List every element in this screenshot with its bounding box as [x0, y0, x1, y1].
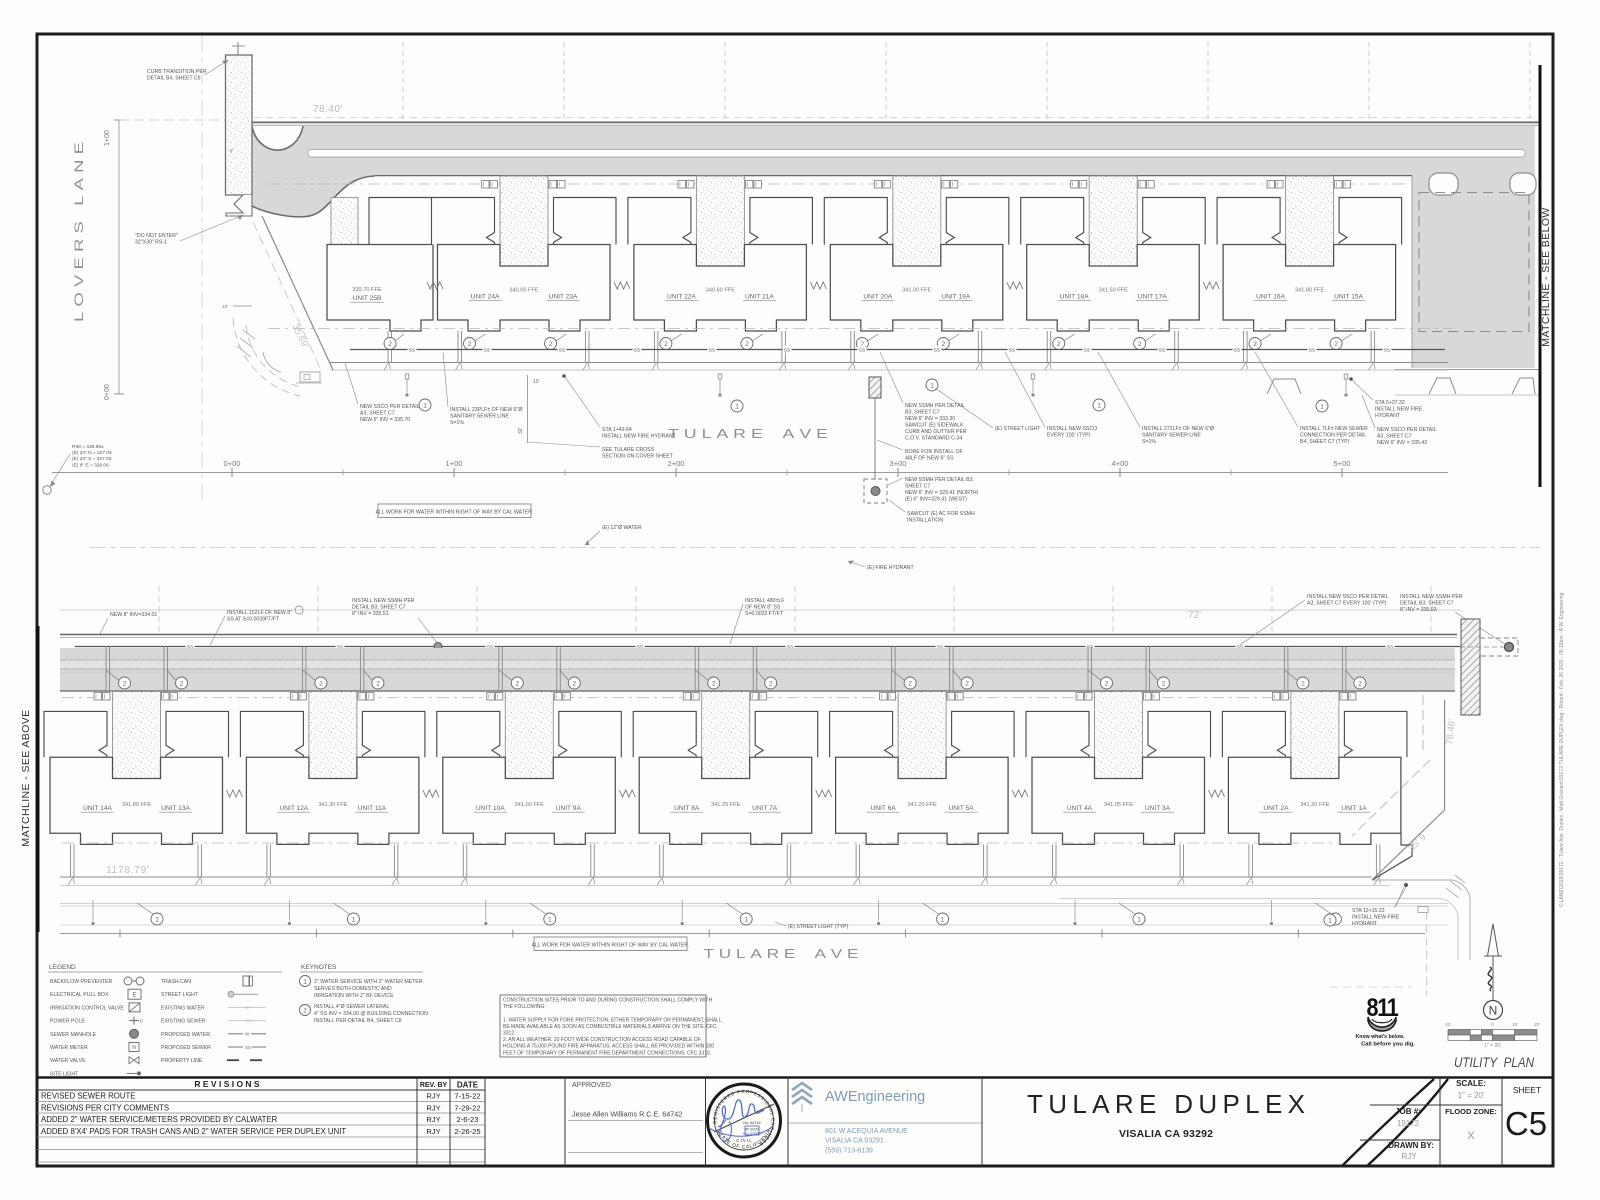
svg-text:7-29-22: 7-29-22: [454, 1103, 480, 1112]
svg-text:STA 5+37.32: STA 5+37.32: [1375, 400, 1405, 406]
svg-text:INSTALL NEW SSMH PER: INSTALL NEW SSMH PER: [352, 598, 415, 604]
svg-text:RJY: RJY: [1401, 1152, 1417, 1161]
svg-text:(559) 713-6139: (559) 713-6139: [825, 1147, 873, 1154]
svg-text:1: 1: [1137, 916, 1141, 923]
svg-text:1: 1: [744, 916, 748, 923]
svg-text:NEW 6" INV = 333.30: NEW 6" INV = 333.30: [905, 416, 955, 422]
svg-text:2: 2: [712, 680, 716, 687]
svg-text:R E V I S I O N S: R E V I S I O N S: [194, 1079, 260, 1089]
svg-text:SHEET: SHEET: [1513, 1085, 1541, 1095]
svg-text:1: 1: [548, 916, 552, 923]
svg-text:NEW 6" INV = 335.70: NEW 6" INV = 335.70: [360, 417, 410, 423]
svg-text:KEYNOTES: KEYNOTES: [301, 964, 337, 971]
svg-text:UNIT 10A: UNIT 10A: [476, 805, 505, 812]
svg-text:DRAWN BY:: DRAWN BY:: [1388, 1141, 1434, 1150]
svg-text:INSTALL NEW SSCO: INSTALL NEW SSCO: [1047, 426, 1097, 432]
svg-text:2: 2: [1358, 680, 1362, 687]
svg-text:POWER POLE: POWER POLE: [50, 1019, 85, 1025]
svg-text:2: 2: [1334, 341, 1338, 348]
svg-text:0+00: 0+00: [224, 459, 241, 468]
svg-text:48LF OF NEW 6" SS: 48LF OF NEW 6" SS: [905, 456, 954, 462]
svg-text:1: 1: [352, 916, 356, 923]
svg-text:(E) STREET LIGHT (TYP): (E) STREET LIGHT (TYP): [788, 924, 849, 930]
svg-text:PROPOSED SEWER: PROPOSED SEWER: [161, 1045, 211, 1051]
svg-text:8" INV = 335.51: 8" INV = 335.51: [352, 611, 389, 617]
svg-text:C.O.V. STANDARD C-34: C.O.V. STANDARD C-34: [905, 436, 962, 442]
svg-text:341.25 FFE: 341.25 FFE: [711, 802, 740, 808]
svg-text:1: 1: [303, 978, 307, 985]
svg-text:32"X30" RS-1: 32"X30" RS-1: [135, 240, 167, 246]
svg-text:UNIT 18A: UNIT 18A: [1060, 294, 1089, 301]
svg-text:CONSTRUCTION SITES PRIOR TO AN: CONSTRUCTION SITES PRIOR TO AND DURING C…: [503, 998, 713, 1004]
svg-text:2: 2: [388, 341, 392, 348]
svg-text:2: 2: [664, 341, 668, 348]
svg-text:X: X: [1467, 1130, 1475, 1142]
svg-text:2: 2: [1138, 341, 1142, 348]
svg-text:SS: SS: [934, 348, 940, 354]
svg-text:© LANE\2019\19172 - Tulare A: © LANE\2019\19172 - Tulare Ave. Duplex -…: [1558, 592, 1565, 907]
svg-text:REVISIONS PER CITY COMMENTS: REVISIONS PER CITY COMMENTS: [41, 1103, 169, 1112]
svg-text:2: 2: [376, 680, 380, 687]
svg-text:341.00 FFE: 341.00 FFE: [902, 288, 931, 294]
svg-text:E: E: [132, 993, 136, 999]
svg-text:2-26-25: 2-26-25: [454, 1127, 480, 1136]
svg-text:DETAIL B3, SHEET C7: DETAIL B3, SHEET C7: [1400, 601, 1454, 607]
svg-text:SS: SS: [1159, 348, 1165, 354]
svg-text:UNIT 23A: UNIT 23A: [549, 294, 578, 301]
svg-text:2: 2: [468, 341, 472, 348]
svg-text:2-6-23: 2-6-23: [457, 1115, 479, 1124]
svg-text:1: 1: [735, 403, 739, 410]
svg-text:2: 2: [965, 680, 969, 687]
svg-text:2: 2: [1105, 680, 1109, 687]
svg-text:2" WATER SERVICE WITH 2" WATER: 2" WATER SERVICE WITH 2" WATER METER.: [314, 979, 424, 985]
svg-text:VISALIA CA 93292: VISALIA CA 93292: [1119, 1128, 1213, 1140]
svg-text:SS AT S=0.0039FT/FT: SS AT S=0.0039FT/FT: [227, 617, 280, 623]
svg-text:RJY: RJY: [426, 1103, 440, 1112]
svg-text:INSTALL PER DETAIL B4, SHEET C: INSTALL PER DETAIL B4, SHEET C8: [314, 1018, 402, 1024]
svg-text:UNIT 7A: UNIT 7A: [752, 805, 778, 812]
svg-text:(E) 24" N = 327.03: (E) 24" N = 327.03: [72, 450, 112, 456]
svg-text:EXISTING SEWER: EXISTING SEWER: [161, 1019, 206, 1025]
svg-text:Exp. 6/30/23: Exp. 6/30/23: [743, 1132, 761, 1136]
svg-text:SAWCUT (E) AC FOR SSMH: SAWCUT (E) AC FOR SSMH: [907, 511, 975, 517]
svg-text:B3, SHEET C7: B3, SHEET C7: [905, 410, 940, 416]
svg-text:SS: SS: [1384, 348, 1390, 354]
svg-text:APPROVED: APPROVED: [572, 1082, 611, 1089]
svg-text:N: N: [1489, 1004, 1498, 1018]
svg-text:DETAIL B3, SHEET C7: DETAIL B3, SHEET C7: [352, 605, 406, 611]
svg-text:No. 64742: No. 64742: [743, 1121, 761, 1125]
svg-text:NEW 8" INV=334.01: NEW 8" INV=334.01: [110, 612, 157, 618]
svg-text:S=1%: S=1%: [450, 420, 464, 426]
svg-text:1" = 20': 1" = 20': [1484, 1043, 1501, 1049]
svg-text:3+00: 3+00: [890, 459, 907, 468]
svg-text:1+00: 1+00: [104, 130, 111, 146]
svg-text:INSTALL NEW FIRE: INSTALL NEW FIRE: [1375, 407, 1423, 413]
svg-text:1: 1: [930, 382, 934, 389]
svg-text:8" INV = 335.93: 8" INV = 335.93: [1400, 607, 1437, 613]
svg-text:INSTALL 7LF± NEW SEWER: INSTALL 7LF± NEW SEWER: [1300, 426, 1368, 432]
svg-text:1: 1: [1097, 402, 1101, 409]
svg-text:0+00: 0+00: [104, 384, 111, 400]
svg-text:(E) 12"Ø WATER: (E) 12"Ø WATER: [602, 525, 642, 531]
svg-text:C I V I L: C I V I L: [736, 1138, 752, 1143]
svg-text:BORE FOR INSTALL OF: BORE FOR INSTALL OF: [905, 449, 963, 455]
svg-text:4+00: 4+00: [1112, 459, 1129, 468]
svg-text:1" = 20': 1" = 20': [1458, 1091, 1485, 1100]
svg-text:2: 2: [1162, 680, 1166, 687]
svg-text:B4, SHEET C7 (TYP): B4, SHEET C7 (TYP): [1300, 439, 1350, 445]
svg-text:UNIT 8A: UNIT 8A: [674, 805, 700, 812]
svg-text:2: 2: [1057, 341, 1061, 348]
svg-text:SS: SS: [1234, 348, 1240, 354]
svg-text:UNIT 4A: UNIT 4A: [1067, 805, 1093, 812]
svg-text:EXISTING WATER: EXISTING WATER: [161, 1005, 205, 1011]
svg-text:INSTALL NEW FIRE HYDRANT: INSTALL NEW FIRE HYDRANT: [602, 434, 677, 440]
svg-text:OF NEW 8" SS: OF NEW 8" SS: [745, 605, 781, 611]
svg-text:340.00 FFE: 340.00 FFE: [509, 288, 538, 294]
svg-text:1. WATER SUPPLY FOR FORE PROTE: 1. WATER SUPPLY FOR FORE PROTECTION, EIT…: [503, 1017, 722, 1023]
svg-text:UTILITY PLAN: UTILITY PLAN: [1454, 1054, 1535, 1070]
svg-text:UNIT 15A: UNIT 15A: [1334, 294, 1363, 301]
svg-text:SEWER MANHOLE: SEWER MANHOLE: [50, 1032, 97, 1038]
svg-text:10': 10': [222, 304, 228, 310]
svg-text:BE MADE AVAILABLE AS SOON AS C: BE MADE AVAILABLE AS SOON AS COMBUSTIBLE…: [503, 1024, 717, 1030]
svg-text:RJY: RJY: [426, 1092, 440, 1101]
svg-text:VISALIA CA 93291: VISALIA CA 93291: [825, 1138, 884, 1145]
svg-text:o: o: [140, 1019, 143, 1025]
svg-text:10': 10': [1512, 1022, 1518, 1027]
svg-text:S=1%: S=1%: [1142, 439, 1156, 445]
svg-text:SS: SS: [245, 1018, 251, 1023]
svg-text:DETAIL B4, SHEET C6: DETAIL B4, SHEET C6: [147, 76, 201, 82]
svg-text:1: 1: [1320, 403, 1324, 410]
svg-text:(E) 6" INV=329.41 (WEST): (E) 6" INV=329.41 (WEST): [905, 497, 967, 503]
svg-text:340.60 FFE: 340.60 FFE: [706, 288, 735, 294]
svg-text:IRRIGATION CONTROL VALVE: IRRIGATION CONTROL VALVE: [50, 1005, 124, 1011]
svg-text:SS: SS: [859, 348, 865, 354]
svg-text:JOB #:: JOB #:: [1395, 1107, 1421, 1116]
svg-text:5+00: 5+00: [1334, 459, 1351, 468]
svg-text:SS: SS: [245, 1045, 251, 1050]
svg-text:1+00: 1+00: [446, 459, 463, 468]
svg-text:SERVES BOTH DOMESTIC AND: SERVES BOTH DOMESTIC AND: [314, 986, 392, 992]
svg-text:PROPERTY LINE: PROPERTY LINE: [161, 1058, 203, 1064]
svg-text:UNIT 12A: UNIT 12A: [279, 805, 308, 812]
svg-text:UNIT 14A: UNIT 14A: [83, 805, 112, 812]
svg-text:2: 2: [572, 680, 576, 687]
svg-text:2: 2: [549, 341, 553, 348]
svg-text:C5: C5: [1505, 1105, 1547, 1142]
svg-text:72': 72': [1188, 610, 1201, 621]
svg-text:UNIT 24A: UNIT 24A: [471, 294, 500, 301]
svg-text:341.80 FFE: 341.80 FFE: [1295, 288, 1324, 294]
svg-text:TRASH CAN: TRASH CAN: [161, 979, 191, 985]
svg-text:ADDED 2" WATER SERVICE/METERS: ADDED 2" WATER SERVICE/METERS PROVIDED B…: [41, 1115, 278, 1124]
svg-text:341.20 FFE: 341.20 FFE: [907, 802, 936, 808]
svg-text:SS: SS: [634, 348, 640, 354]
svg-text:(E) FIRE HYDRANT: (E) FIRE HYDRANT: [867, 565, 915, 571]
svg-text:SHEET C7: SHEET C7: [905, 484, 930, 490]
svg-text:LEGEND: LEGEND: [49, 964, 76, 971]
svg-text:801 W ACEQUIA AVENUE: 801 W ACEQUIA AVENUE: [825, 1128, 908, 1135]
svg-text:THE FOLLOWING:: THE FOLLOWING:: [503, 1004, 546, 1010]
svg-text:INSTALL NEW SSCO PER DETAIL: INSTALL NEW SSCO PER DETAIL: [1307, 594, 1389, 600]
svg-text:341.30 FFE: 341.30 FFE: [318, 802, 347, 808]
svg-text:SEE TULARE CROSS: SEE TULARE CROSS: [602, 447, 655, 453]
svg-text:MATCHLINE - SEE BELOW: MATCHLINE - SEE BELOW: [1540, 207, 1552, 346]
svg-text:SS: SS: [784, 348, 790, 354]
svg-text:2: 2: [123, 680, 127, 687]
svg-text:1: 1: [1328, 917, 1332, 924]
svg-text:UNIT 2A: UNIT 2A: [1263, 805, 1289, 812]
svg-text:A3, SHEET C7: A3, SHEET C7: [1377, 434, 1412, 440]
svg-text:FEET OF TEMPORARY OF PERMANENT: FEET OF TEMPORARY OF PERMANENT FIRE DEPA…: [503, 1050, 711, 1056]
svg-text:UNIT 13A: UNIT 13A: [161, 805, 190, 812]
svg-text:WATER METER: WATER METER: [50, 1045, 88, 1051]
svg-text:A3, SHEET C7 EVERY 100' (TYP): A3, SHEET C7 EVERY 100' (TYP): [1307, 601, 1387, 607]
svg-text:341.00 FFE: 341.00 FFE: [515, 802, 544, 808]
svg-text:T U L A R E A V E: T U L A R E A V E: [668, 426, 828, 441]
svg-text:SS: SS: [1084, 348, 1090, 354]
svg-text:CURB AND GUTTER PER: CURB AND GUTTER PER: [905, 429, 967, 435]
svg-text:SS: SS: [559, 348, 565, 354]
svg-text:"DO NOT ENTER": "DO NOT ENTER": [135, 233, 178, 239]
svg-text:Call before you dig.: Call before you dig.: [1361, 1042, 1415, 1048]
svg-text:REVISED SEWER ROUTE: REVISED SEWER ROUTE: [41, 1092, 135, 1101]
svg-text:2: 2: [319, 680, 323, 687]
svg-text:341.05 FFE: 341.05 FFE: [1104, 802, 1133, 808]
svg-text:NEW SSCO PER DETAIL: NEW SSCO PER DETAIL: [1377, 427, 1437, 433]
svg-text:2: 2: [303, 1007, 307, 1014]
svg-text:UNIT 9A: UNIT 9A: [556, 805, 582, 812]
svg-text:2: 2: [515, 680, 519, 687]
svg-text:UNIT 1A: UNIT 1A: [1341, 805, 1367, 812]
svg-text:Jesse Allen Williams R.C.E.: Jesse Allen Williams R.C.E. 64742: [572, 1110, 682, 1119]
svg-text:SS: SS: [1009, 348, 1015, 354]
svg-text:2+00: 2+00: [668, 459, 685, 468]
svg-text:STA 12+15.22: STA 12+15.22: [1352, 908, 1385, 914]
svg-text:Know what's below.: Know what's below.: [1356, 1034, 1405, 1040]
svg-text:WATER VALVE: WATER VALVE: [50, 1058, 86, 1064]
svg-text:UNIT 19A: UNIT 19A: [941, 294, 970, 301]
svg-text:DATE: DATE: [457, 1081, 479, 1090]
svg-text:2: 2: [180, 680, 184, 687]
svg-text:339.70 FFE: 339.70 FFE: [352, 287, 381, 293]
svg-text:AWEngineering: AWEngineering: [825, 1089, 925, 1105]
svg-text:4" SS INV = 334.00 @ BUILDING: 4" SS INV = 334.00 @ BUILDING CONNECTION: [314, 1011, 428, 1017]
svg-text:ALL WORK FOR WATER WITHIN RIGH: ALL WORK FOR WATER WITHIN RIGHT OF WAY B…: [532, 942, 690, 948]
svg-text:S=0.0033 FT/FT: S=0.0033 FT/FT: [745, 611, 784, 617]
svg-text:SAWCUT (E) SIDEWALK: SAWCUT (E) SIDEWALK: [905, 423, 964, 429]
svg-text:EVERY 100' (TYP): EVERY 100' (TYP): [1047, 433, 1091, 439]
svg-text:341.20 FFE: 341.20 FFE: [1300, 802, 1329, 808]
svg-text:SS: SS: [709, 348, 715, 354]
svg-text:SANITARY SEWER LINE: SANITARY SEWER LINE: [1142, 433, 1201, 439]
svg-text:A3, SHEET C7: A3, SHEET C7: [360, 411, 395, 417]
svg-text:INSTALL NEW SSMH PER: INSTALL NEW SSMH PER: [1400, 594, 1463, 600]
svg-text:7-15-22: 7-15-22: [454, 1092, 480, 1101]
svg-text:RJY: RJY: [426, 1127, 440, 1136]
svg-text:20': 20': [1445, 1022, 1451, 1027]
svg-text:1: 1: [941, 916, 945, 923]
svg-text:UNIT 21A: UNIT 21A: [745, 294, 774, 301]
svg-text:SCALE:: SCALE:: [1456, 1079, 1486, 1088]
svg-text:UNIT 20A: UNIT 20A: [863, 294, 892, 301]
svg-text:341.80 FFE: 341.80 FFE: [122, 802, 151, 808]
svg-text:SANITARY SEWER LINE: SANITARY SEWER LINE: [450, 414, 509, 420]
svg-text:32': 32': [518, 427, 524, 434]
svg-text:UNIT 16A: UNIT 16A: [1256, 294, 1285, 301]
svg-text:2: 2: [745, 341, 749, 348]
svg-text:RJY: RJY: [426, 1115, 440, 1124]
svg-text:8': 8': [230, 148, 234, 153]
svg-text:IRRIGATION WITH 2" BF DEVICE: IRRIGATION WITH 2" BF DEVICE: [314, 993, 394, 999]
svg-text:3312.: 3312.: [503, 1031, 516, 1037]
svg-text:INSTALL 272LF± OF NEW 6"Ø: INSTALL 272LF± OF NEW 6"Ø: [1142, 426, 1214, 432]
svg-text:2: 2: [1253, 341, 1257, 348]
svg-text:T U L A R E A V E: T U L A R E A V E: [704, 946, 859, 961]
svg-text:2: 2: [941, 341, 945, 348]
svg-text:UNIT 5A: UNIT 5A: [949, 805, 975, 812]
svg-text:NEW 6" INV = 335.42: NEW 6" INV = 335.42: [1377, 440, 1427, 446]
svg-text:20': 20': [1534, 1022, 1540, 1027]
svg-text:N: N: [132, 1045, 136, 1051]
svg-text:INSTALL 23PLF± OF NEW 6"Ø: INSTALL 23PLF± OF NEW 6"Ø: [450, 407, 522, 413]
svg-text:NEW 6" INV = 329.41 (NORTH): NEW 6" INV = 329.41 (NORTH): [905, 490, 979, 496]
svg-text:19172: 19172: [1397, 1119, 1420, 1128]
svg-text:CURB TRANSITION PER: CURB TRANSITION PER: [147, 69, 207, 75]
svg-text:HYDRANT: HYDRANT: [1375, 413, 1401, 419]
svg-text:STREET LIGHT: STREET LIGHT: [161, 992, 199, 998]
svg-text:NEW SSCO PER DETAIL: NEW SSCO PER DETAIL: [360, 404, 420, 410]
svg-text:UNIT 11A: UNIT 11A: [358, 805, 387, 812]
svg-text:HYDRANT: HYDRANT: [1352, 921, 1378, 927]
svg-text:SECTION ON COVER SHEET: SECTION ON COVER SHEET: [602, 454, 674, 460]
svg-text:ELECTRICAL PULL BOX: ELECTRICAL PULL BOX: [50, 992, 109, 998]
svg-text:2: 2: [769, 680, 773, 687]
svg-text:INSTALL 480±LF: INSTALL 480±LF: [745, 598, 784, 604]
svg-text:HOLDING A 75,000 POUND FIRE AP: HOLDING A 75,000 POUND FIRE APPARATUS. A…: [503, 1044, 714, 1050]
svg-text:(E) STREET LIGHT: (E) STREET LIGHT: [995, 426, 1041, 432]
svg-text:INSTALL 152LF OF NEW 8": INSTALL 152LF OF NEW 8": [227, 610, 292, 616]
svg-text:811: 811: [1367, 994, 1399, 1022]
svg-text:341.50 FFE: 341.50 FFE: [1099, 288, 1128, 294]
svg-text:MATCHLINE - SEE ABOVE: MATCHLINE - SEE ABOVE: [20, 709, 32, 846]
svg-text:RIM = 339.89±: RIM = 339.89±: [72, 444, 104, 450]
svg-text:UNIT 3A: UNIT 3A: [1145, 805, 1171, 812]
svg-text:78.40': 78.40': [313, 104, 343, 115]
svg-text:STA 1+49.64: STA 1+49.64: [602, 427, 632, 433]
svg-text:PROPOSED WATER: PROPOSED WATER: [161, 1032, 210, 1038]
svg-text:(E) 8" E = 328.06: (E) 8" E = 328.06: [72, 462, 109, 468]
svg-text:ADDED 8'X4' PADS FOR TRASH CAN: ADDED 8'X4' PADS FOR TRASH CANS AND 2" W…: [41, 1127, 346, 1136]
svg-text:UNIT 6A: UNIT 6A: [871, 805, 897, 812]
svg-text:UNIT 22A: UNIT 22A: [667, 294, 696, 301]
svg-text:UNIT 17A: UNIT 17A: [1138, 294, 1167, 301]
svg-text:1178.79': 1178.79': [106, 864, 149, 876]
svg-text:BACKFLOW PREVENTER: BACKFLOW PREVENTER: [50, 979, 113, 985]
svg-text:REV. BY: REV. BY: [420, 1082, 448, 1089]
svg-text:NEW SSMH PER DETAIL B3,: NEW SSMH PER DETAIL B3,: [905, 477, 974, 483]
svg-text:SS: SS: [484, 348, 490, 354]
svg-text:SS: SS: [1309, 348, 1315, 354]
svg-text:10': 10': [533, 379, 540, 385]
svg-text:INSTALLATION: INSTALLATION: [907, 518, 943, 524]
svg-text:NEW SSMH PER DETAIL: NEW SSMH PER DETAIL: [905, 403, 965, 409]
svg-text:SS: SS: [409, 348, 415, 354]
svg-text:1: 1: [423, 402, 427, 409]
svg-text:2: 2: [908, 680, 912, 687]
svg-text:2: 2: [1301, 680, 1305, 687]
svg-text:UNIT 25B: UNIT 25B: [353, 295, 382, 302]
svg-text:FLOOD ZONE:: FLOOD ZONE:: [1445, 1107, 1497, 1116]
svg-text:INSTALL NEW FIRE: INSTALL NEW FIRE: [1352, 915, 1400, 921]
svg-text:L O V E R S L A N E: L O V E R S L A N E: [72, 142, 86, 322]
svg-text:INSTALL 4"Ø SEWER LATERAL: INSTALL 4"Ø SEWER LATERAL: [314, 1004, 389, 1010]
svg-text:ALL WORK FOR WATER WITHIN RIGH: ALL WORK FOR WATER WITHIN RIGHT OF WAY B…: [376, 509, 534, 515]
svg-text:2. AN ALL WEATHER, 20 FOOT WID: 2. AN ALL WEATHER, 20 FOOT WIDE CONSTRUC…: [503, 1037, 701, 1043]
svg-text:CONNECTION PER DETAIL: CONNECTION PER DETAIL: [1300, 433, 1366, 439]
svg-text:(E) 24" S = 327.03: (E) 24" S = 327.03: [72, 456, 112, 462]
svg-text:1: 1: [155, 916, 159, 923]
